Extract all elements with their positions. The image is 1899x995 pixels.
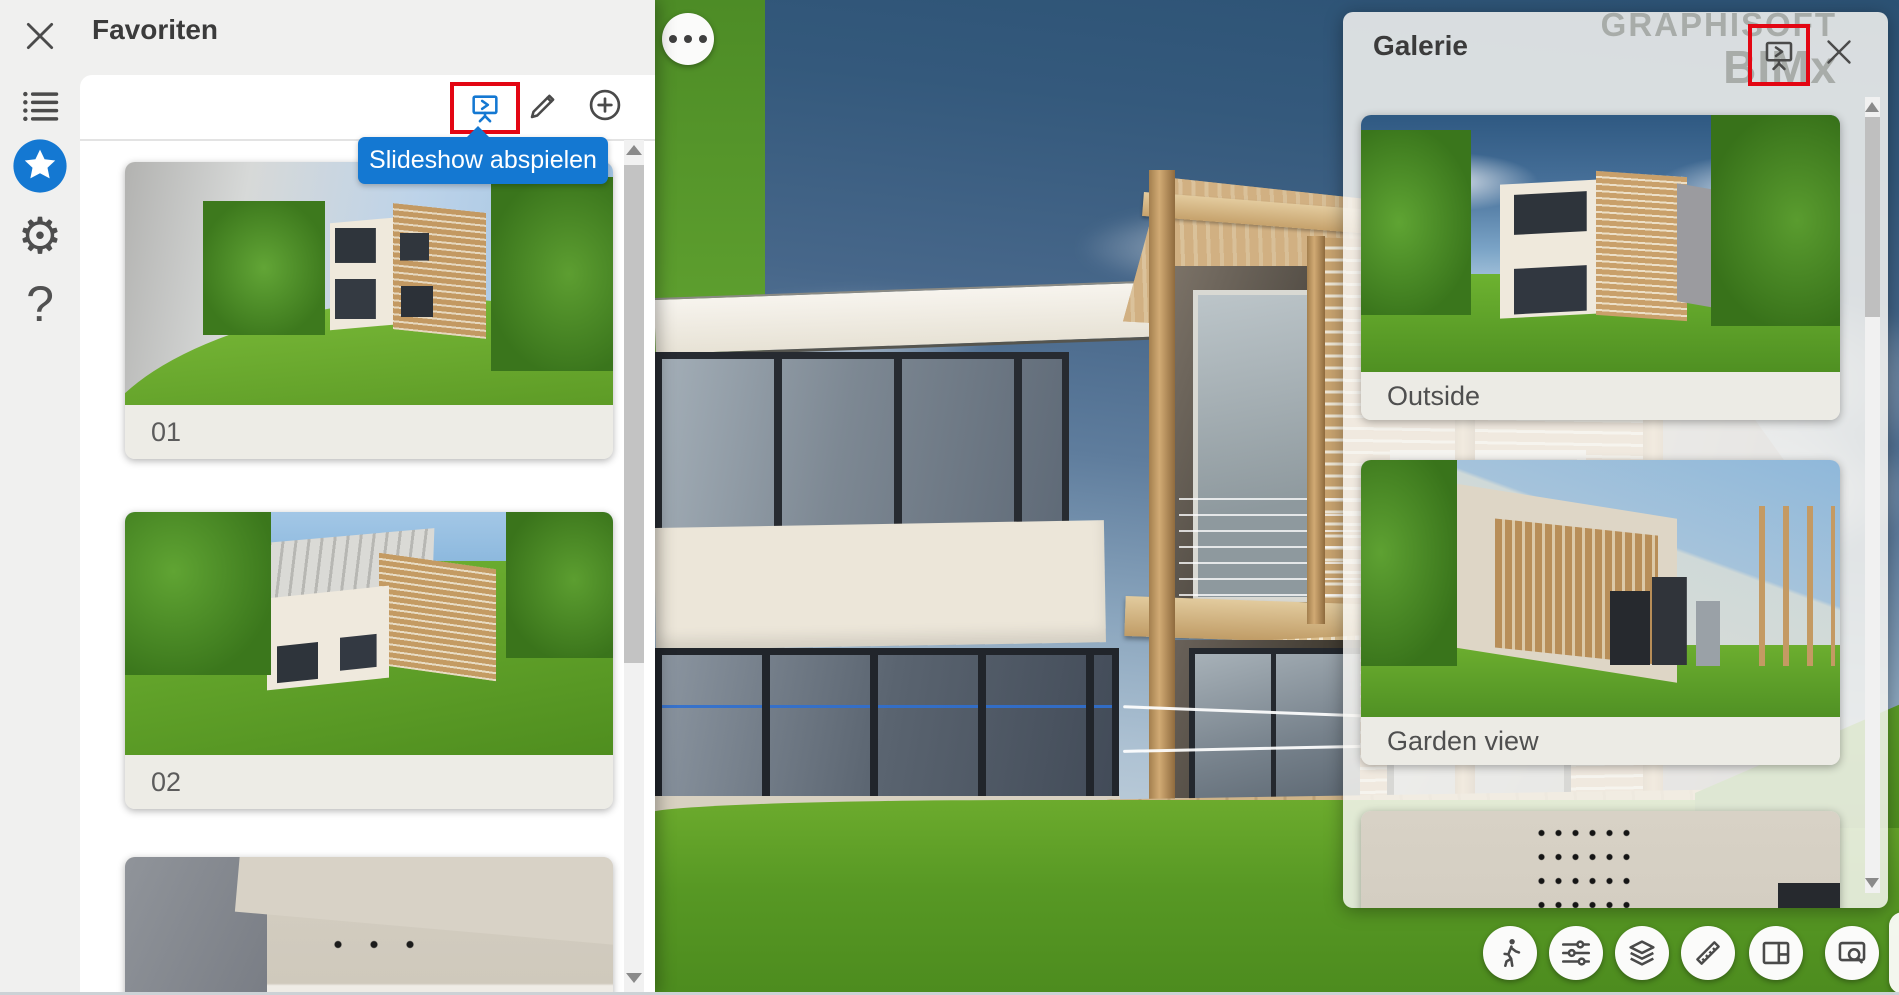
thumbnail-image	[1361, 115, 1840, 372]
help-icon: ?	[26, 275, 54, 333]
thumbnail-card[interactable]: Garden view	[1361, 460, 1840, 765]
gear-icon: ⚙	[18, 207, 63, 265]
star-icon	[11, 137, 69, 195]
ruler-icon	[1691, 936, 1725, 970]
floor-plan-button[interactable]	[1749, 926, 1803, 980]
list-icon	[18, 84, 62, 128]
scrollbar-thumb[interactable]	[624, 165, 644, 663]
plus-icon	[586, 86, 624, 124]
thumbnail-card[interactable]: 01	[125, 162, 613, 459]
layers-button[interactable]	[1615, 926, 1669, 980]
scroll-down-arrow[interactable]	[626, 973, 642, 983]
thumbnail-label: 02	[125, 755, 613, 809]
thumbnail-image	[125, 162, 613, 405]
thumbnail-label: 01	[125, 405, 613, 459]
sidebar-item-help[interactable]: ?	[14, 278, 66, 330]
thumbnail-card[interactable]: 02	[125, 512, 613, 809]
layers-icon	[1625, 936, 1659, 970]
thumbnail-scene	[1361, 460, 1840, 717]
thumbnail-card[interactable]	[125, 857, 613, 995]
thumbnail-scene	[125, 162, 613, 405]
thumbnail-image	[1361, 811, 1840, 908]
ellipsis-icon	[669, 35, 677, 43]
view-zoom-button[interactable]	[1825, 926, 1879, 980]
scroll-up-arrow[interactable]	[1865, 102, 1879, 112]
pencil-icon	[526, 87, 562, 123]
gallery-panel: Galerie Outside Garden view	[1343, 12, 1888, 908]
house-white-wall	[655, 520, 1106, 650]
favorites-toolbar	[80, 75, 655, 141]
thumbnail-label: Outside	[1361, 372, 1840, 420]
thumbnail-card[interactable]: Outside	[1361, 115, 1840, 420]
thumbnail-card[interactable]	[1361, 811, 1840, 908]
thumbnail-scene	[1361, 115, 1840, 372]
thumbnail-scene	[1361, 811, 1840, 908]
add-favorite-button[interactable]	[586, 86, 624, 124]
scrollbar-thumb[interactable]	[1865, 117, 1880, 317]
sidebar-item-list[interactable]	[14, 80, 66, 132]
walk-mode-button[interactable]	[1483, 926, 1537, 980]
walk-icon	[1493, 936, 1527, 970]
terrace-sliding-door	[1189, 648, 1369, 807]
sidebar-item-settings[interactable]: ⚙	[14, 210, 66, 262]
favorites-card: 01 02	[80, 75, 655, 995]
screen-search-icon	[1835, 936, 1869, 970]
sliders-icon	[1559, 936, 1593, 970]
pergola-post	[1307, 236, 1325, 624]
scroll-up-arrow[interactable]	[626, 145, 642, 155]
sidebar-item-favorites[interactable]	[14, 140, 66, 192]
render-settings-button[interactable]	[1549, 926, 1603, 980]
edit-button[interactable]	[526, 87, 562, 123]
gallery-thumbnail-list: Outside Garden view	[1343, 12, 1888, 908]
scroll-down-arrow[interactable]	[1865, 878, 1879, 888]
thumbnail-scene	[125, 512, 613, 755]
thumbnail-label: Garden view	[1361, 717, 1840, 765]
favorites-thumbnail-list: 01 02	[80, 141, 655, 995]
close-panel-button[interactable]	[14, 10, 66, 62]
thumbnail-scene	[125, 857, 613, 995]
more-options-button[interactable]	[662, 13, 714, 65]
house-lower-window	[655, 648, 1119, 812]
panel-title: Favoriten	[92, 14, 218, 46]
thumbnail-image	[1361, 460, 1840, 717]
floor-plan-icon	[1759, 936, 1793, 970]
measure-button[interactable]	[1681, 926, 1735, 980]
thumbnail-image	[125, 512, 613, 755]
house-upper-window	[655, 352, 1069, 544]
tooltip: Slideshow abspielen	[358, 137, 608, 184]
thumbnail-image	[125, 857, 613, 995]
offscreen-panel-edge	[1889, 912, 1899, 994]
close-icon	[20, 16, 60, 56]
slideshow-icon	[468, 91, 502, 125]
tooltip-text: Slideshow abspielen	[369, 146, 597, 175]
